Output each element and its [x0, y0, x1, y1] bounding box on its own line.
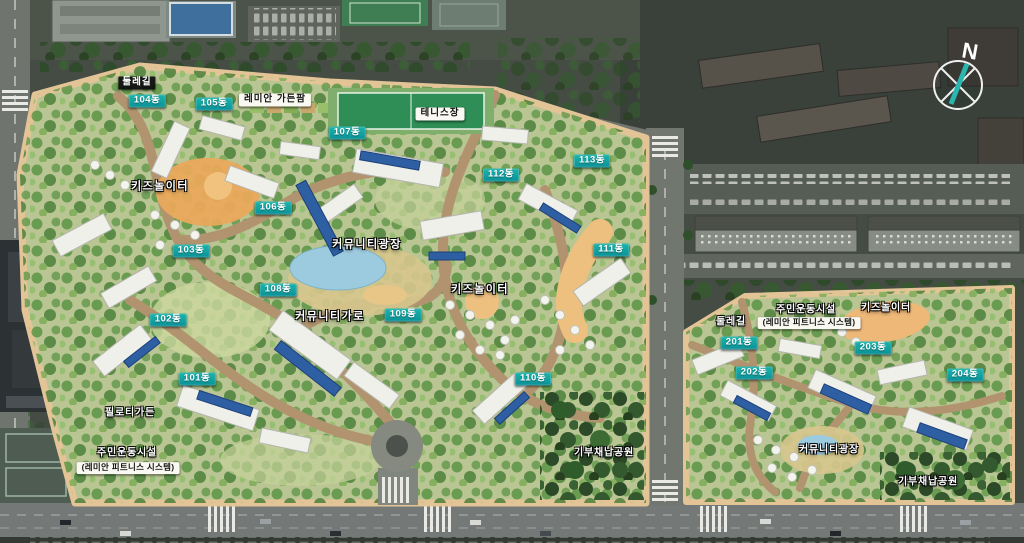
building-badge-203: 203동: [855, 342, 892, 355]
building-badge-110: 110동: [515, 373, 551, 386]
garden-farm-label: 레미안 가든팜: [239, 94, 311, 107]
building-badge-111: 111동: [593, 244, 629, 257]
community-street-label: 커뮤니티가로: [295, 311, 365, 324]
kids-playground-label-right: 키즈놀이터: [861, 302, 911, 314]
building-badge-109: 109동: [385, 309, 422, 322]
kids-playground-label-center: 키즈놀이터: [451, 284, 509, 297]
labels-layer: 101동 102동 103동 104동 105동 106동 107동 108동 …: [0, 0, 1024, 543]
tennis-court-label: 테니스장: [416, 108, 465, 121]
residents-sports-label-right: 주민운동시설: [776, 304, 836, 316]
residents-sports-label-left: 주민운동시설: [97, 447, 157, 459]
trail-label-left: 둘레길: [118, 77, 155, 90]
fitness-system-label-left: (레미안 피트니스 시스템): [77, 462, 180, 474]
building-badge-113: 113동: [574, 155, 610, 168]
building-badge-102: 102동: [150, 314, 187, 327]
donated-park-label-right: 기부채납공원: [898, 476, 958, 488]
building-badge-105: 105동: [196, 98, 233, 111]
building-badge-104: 104동: [129, 95, 166, 108]
community-plaza-label-right: 커뮤니티광장: [799, 444, 859, 456]
building-badge-201: 201동: [721, 337, 758, 350]
building-badge-107: 107동: [329, 127, 366, 140]
building-badge-204: 204동: [947, 369, 984, 382]
community-plaza-label-left: 커뮤니티광장: [332, 239, 402, 252]
building-badge-112: 112동: [483, 169, 519, 182]
fitness-system-label-right: (레미안 피트니스 시스템): [758, 317, 861, 329]
building-badge-108: 108동: [260, 284, 297, 297]
building-badge-103: 103동: [173, 245, 210, 258]
kids-playground-label-left: 키즈놀이터: [131, 181, 189, 194]
building-badge-202: 202동: [736, 367, 773, 380]
site-plan-screenshot: N 101동 102동 103동 104동 105동 106동 107동 108…: [0, 0, 1024, 543]
trail-label-right: 둘레길: [716, 316, 746, 328]
donated-park-label-left: 기부채납공원: [574, 447, 634, 459]
piloti-garden-label: 필로티가든: [105, 407, 155, 419]
building-badge-106: 106동: [255, 202, 292, 215]
building-badge-101: 101동: [179, 373, 216, 386]
